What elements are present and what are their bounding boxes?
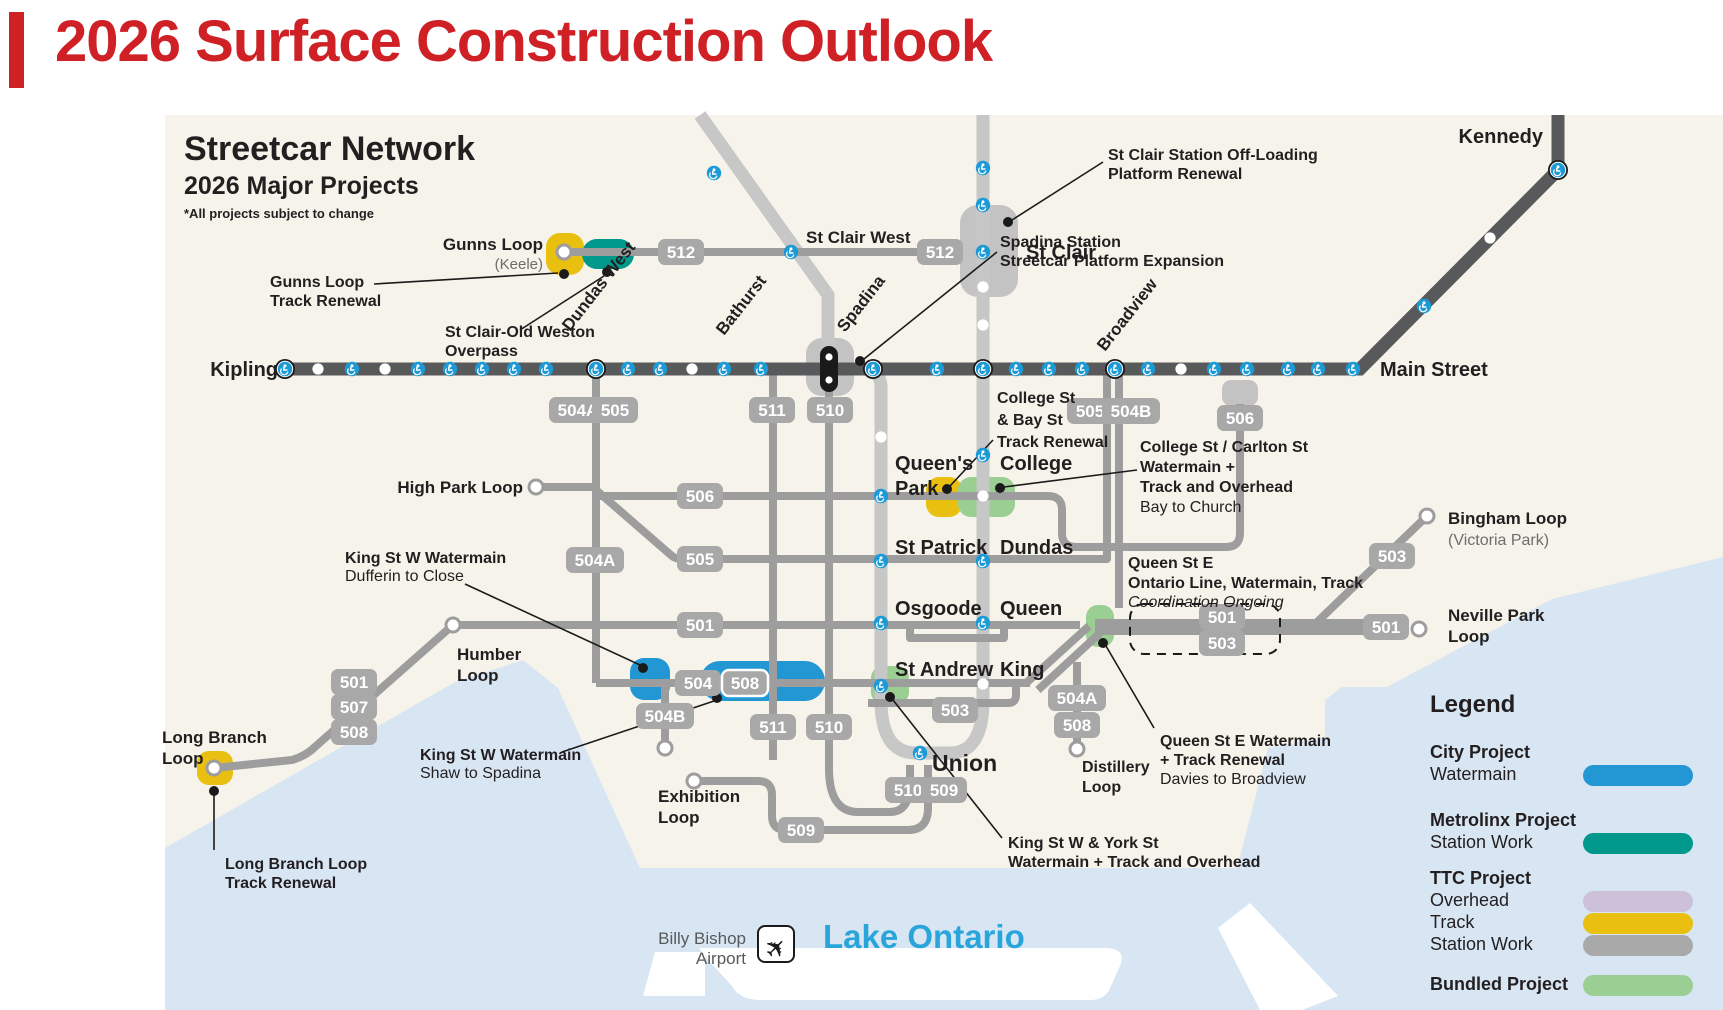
route-badge-label: 511 bbox=[758, 401, 785, 420]
legend-row-label: Station Work bbox=[1430, 934, 1534, 954]
map-label: (Victoria Park) bbox=[1448, 532, 1549, 549]
map-label: Queen's bbox=[895, 453, 973, 475]
route-badge-label: 504A bbox=[575, 551, 616, 570]
accessible-head bbox=[1246, 364, 1249, 367]
annotation-anchor-dot bbox=[638, 663, 648, 673]
station-dot bbox=[686, 363, 697, 374]
loop-terminal-circle bbox=[207, 761, 221, 775]
accessible-head bbox=[284, 364, 287, 367]
map-label: Spadina Station bbox=[1000, 234, 1121, 251]
map-label: + Track Renewal bbox=[1160, 752, 1285, 769]
accessible-head bbox=[982, 364, 985, 367]
accessible-head bbox=[1081, 364, 1084, 367]
route-badge-label: 501 bbox=[340, 673, 368, 692]
station-dot bbox=[1175, 363, 1186, 374]
route-badge-label: 501 bbox=[1372, 618, 1400, 637]
map-label: Watermain + bbox=[1140, 459, 1235, 476]
accessible-head bbox=[1147, 364, 1150, 367]
station-dot bbox=[977, 319, 988, 330]
legend-pill-teal bbox=[1583, 833, 1693, 854]
map-label: Loop bbox=[1082, 779, 1121, 796]
accessible-head bbox=[351, 364, 354, 367]
map-label: Davies to Broadview bbox=[1160, 771, 1306, 788]
route-badge-label: 510 bbox=[816, 401, 844, 420]
station-work-blob bbox=[1222, 380, 1258, 406]
legend-title: Legend bbox=[1430, 691, 1515, 718]
spadina-interchange-dot bbox=[825, 376, 832, 383]
map-label: Dundas bbox=[1000, 537, 1073, 559]
map-label: Long Branch bbox=[162, 728, 267, 747]
loop-terminal-circle bbox=[446, 618, 460, 632]
map-label: Union bbox=[932, 750, 997, 776]
accessible-head bbox=[790, 247, 793, 250]
route-badge-label: 508 bbox=[731, 674, 759, 693]
legend-row-label: Metrolinx Project bbox=[1430, 810, 1576, 830]
map-label: Gunns Loop bbox=[270, 274, 364, 291]
annotation-anchor-dot bbox=[1003, 217, 1013, 227]
legend-row-label: Overhead bbox=[1430, 890, 1509, 910]
route-badge-label: 504A bbox=[1057, 689, 1098, 708]
station-dot bbox=[1484, 232, 1495, 243]
map-label: Shaw to Spadina bbox=[420, 765, 541, 782]
station-dot bbox=[875, 431, 886, 442]
map-label: Kipling bbox=[210, 359, 278, 381]
map-label: Bay to Church bbox=[1140, 499, 1241, 516]
legend-pill-yellow bbox=[1583, 913, 1693, 934]
annotation-anchor-dot bbox=[942, 484, 952, 494]
map-label: Park bbox=[895, 478, 939, 500]
accessible-head bbox=[513, 364, 516, 367]
route-badge-label: 512 bbox=[926, 243, 954, 262]
accessible-head bbox=[1557, 165, 1560, 168]
accessible-head bbox=[417, 364, 420, 367]
accessible-head bbox=[880, 491, 883, 494]
accessible-head bbox=[936, 364, 939, 367]
map-label: *All projects subject to change bbox=[184, 206, 374, 221]
accessible-head bbox=[723, 364, 726, 367]
airport-label: Billy Bishop bbox=[658, 929, 746, 948]
route-badge-label: 510 bbox=[894, 781, 922, 800]
route-badge-label: 506 bbox=[1226, 409, 1254, 428]
route-badge-label: 506 bbox=[686, 487, 714, 506]
page: 2026 Surface Construction Outlook 512512… bbox=[0, 0, 1723, 1010]
accessible-head bbox=[982, 200, 985, 203]
legend-row-label: Bundled Project bbox=[1430, 974, 1568, 994]
lake-ontario-label: Lake Ontario bbox=[823, 918, 1025, 955]
route-badge-label: 504B bbox=[645, 707, 686, 726]
route-badge-label: 505 bbox=[1076, 402, 1104, 421]
route-badge-label: 503 bbox=[1208, 634, 1236, 653]
legend-row-label: Station Work bbox=[1430, 832, 1534, 852]
loop-terminal-circle bbox=[529, 480, 543, 494]
map-label: Overpass bbox=[445, 343, 518, 360]
route-badge-label: 503 bbox=[1378, 547, 1406, 566]
route-badge-label: 508 bbox=[340, 723, 368, 742]
map-label: & Bay St bbox=[997, 412, 1063, 429]
map-label: Coordination Ongoing bbox=[1128, 594, 1284, 611]
map-label: Platform Renewal bbox=[1108, 166, 1242, 183]
map-label: Exhibition bbox=[658, 787, 740, 806]
map-label: College bbox=[1000, 453, 1072, 475]
map-label: Loop bbox=[1448, 627, 1490, 646]
accessible-head bbox=[982, 618, 985, 621]
accessible-head bbox=[1015, 364, 1018, 367]
streetcar-network-map: 512512504A505511510505504B506506505504A5… bbox=[0, 0, 1723, 1010]
route-badge-label: 504B bbox=[1111, 402, 1152, 421]
airport-label: Airport bbox=[696, 949, 746, 968]
map-label: Bingham Loop bbox=[1448, 509, 1567, 528]
map-label: Queen bbox=[1000, 598, 1062, 620]
map-label: Track and Overhead bbox=[1140, 479, 1293, 496]
accessible-head bbox=[1048, 364, 1051, 367]
map-label: St Andrew bbox=[895, 659, 994, 681]
route-badge-label: 504 bbox=[684, 674, 713, 693]
accessible-head bbox=[1287, 364, 1290, 367]
spadina-interchange-dot bbox=[825, 353, 832, 360]
map-label: St Patrick bbox=[895, 537, 988, 559]
loop-terminal-circle bbox=[658, 741, 672, 755]
route-badge-label: 507 bbox=[340, 698, 368, 717]
accessible-head bbox=[760, 364, 763, 367]
legend-row-label: Watermain bbox=[1430, 764, 1516, 784]
route-badge-label: 509 bbox=[930, 781, 958, 800]
route-badge-label: 509 bbox=[787, 821, 815, 840]
accessible-head bbox=[880, 618, 883, 621]
annotation-anchor-dot bbox=[1098, 638, 1108, 648]
map-label: Queen St E Watermain bbox=[1160, 733, 1331, 750]
accessible-head bbox=[982, 247, 985, 250]
route-badge-label: 505 bbox=[686, 550, 714, 569]
accessible-head bbox=[659, 364, 662, 367]
accessible-head bbox=[449, 364, 452, 367]
annotation-anchor-dot bbox=[885, 692, 895, 702]
legend-pill-lavender bbox=[1583, 891, 1693, 912]
accessible-head bbox=[595, 364, 598, 367]
route-badge-label: 510 bbox=[815, 718, 843, 737]
map-label: Neville Park bbox=[1448, 606, 1545, 625]
station-dot bbox=[312, 363, 323, 374]
accessible-head bbox=[880, 681, 883, 684]
annotation-anchor-dot bbox=[209, 786, 219, 796]
accessible-head bbox=[982, 450, 985, 453]
map-label: Distillery bbox=[1082, 759, 1150, 776]
map-label: High Park Loop bbox=[397, 478, 523, 497]
legend-row-label: Track bbox=[1430, 912, 1475, 932]
route-badge-label: 505 bbox=[601, 401, 629, 420]
map-label: College St / Carlton St bbox=[1140, 439, 1309, 456]
legend-pill-blue bbox=[1583, 765, 1693, 786]
annotation-anchor-dot bbox=[995, 483, 1005, 493]
legend-row-label: TTC Project bbox=[1430, 868, 1531, 888]
legend-pill-gray_pill bbox=[1583, 935, 1693, 956]
map-label: King St W Watermain bbox=[345, 550, 506, 567]
accessible-head bbox=[1317, 364, 1320, 367]
map-label: St Clair West bbox=[806, 228, 911, 247]
loop-terminal-circle bbox=[1070, 742, 1084, 756]
map-label: Humber bbox=[457, 645, 522, 664]
map-label: St Clair Station Off-Loading bbox=[1108, 147, 1318, 164]
accessible-head bbox=[1114, 364, 1117, 367]
map-label: Long Branch Loop bbox=[225, 856, 367, 873]
annotation-anchor-dot bbox=[559, 269, 569, 279]
map-label: Streetcar Network bbox=[184, 130, 475, 168]
map-label: 2026 Major Projects bbox=[184, 172, 419, 200]
map-label: Dufferin to Close bbox=[345, 568, 464, 585]
route-badge-label: 508 bbox=[1063, 716, 1091, 735]
map-label: (Keele) bbox=[495, 256, 543, 273]
map-label: King bbox=[1000, 659, 1044, 681]
legend-pill-green bbox=[1583, 975, 1693, 996]
map-label: Kennedy bbox=[1459, 126, 1544, 148]
map-label: Track Renewal bbox=[997, 434, 1108, 451]
accessible-head bbox=[1213, 364, 1216, 367]
accessible-head bbox=[880, 556, 883, 559]
loop-terminal-circle bbox=[1420, 509, 1434, 523]
station-dot bbox=[977, 281, 988, 292]
spadina-interchange-icon bbox=[820, 346, 838, 392]
map-label: Main Street bbox=[1380, 359, 1488, 381]
legend-row-label: City Project bbox=[1430, 742, 1530, 762]
map-label: Track Renewal bbox=[270, 293, 381, 310]
route-badge-label: 512 bbox=[667, 243, 695, 262]
map-label: Queen St E bbox=[1128, 555, 1214, 572]
map-label: Track Renewal bbox=[225, 875, 336, 892]
accessible-head bbox=[1352, 364, 1355, 367]
map-label: Loop bbox=[658, 808, 700, 827]
accessible-head bbox=[545, 364, 548, 367]
map-label: Streetcar Platform Expansion bbox=[1000, 253, 1224, 270]
loop-terminal-circle bbox=[557, 245, 571, 259]
map-label: King St W & York St bbox=[1008, 835, 1159, 852]
accessible-head bbox=[481, 364, 484, 367]
annotation-anchor-dot bbox=[855, 356, 865, 366]
map-label: Watermain + Track and Overhead bbox=[1008, 854, 1260, 871]
route-badge-label: 511 bbox=[759, 718, 786, 737]
accessible-head bbox=[872, 364, 875, 367]
map-label: Gunns Loop bbox=[443, 235, 543, 254]
map-label: Ontario Line, Watermain, Track bbox=[1128, 575, 1363, 592]
map-label: College St bbox=[997, 390, 1076, 407]
accessible-head bbox=[713, 168, 716, 171]
map-label: King St W Watermain bbox=[420, 747, 581, 764]
accessible-head bbox=[982, 163, 985, 166]
accessible-head bbox=[1423, 301, 1426, 304]
accessible-head bbox=[627, 364, 630, 367]
route-badge-label: 501 bbox=[686, 616, 714, 635]
station-dot bbox=[977, 490, 988, 501]
map-label: Loop bbox=[162, 749, 204, 768]
map-label: Osgoode bbox=[895, 598, 982, 620]
loop-terminal-circle bbox=[1412, 622, 1426, 636]
accessible-head bbox=[919, 748, 922, 751]
route-badge-label: 503 bbox=[941, 701, 969, 720]
loop-terminal-circle bbox=[687, 774, 701, 788]
map-label: Loop bbox=[457, 666, 499, 685]
station-dot bbox=[379, 363, 390, 374]
